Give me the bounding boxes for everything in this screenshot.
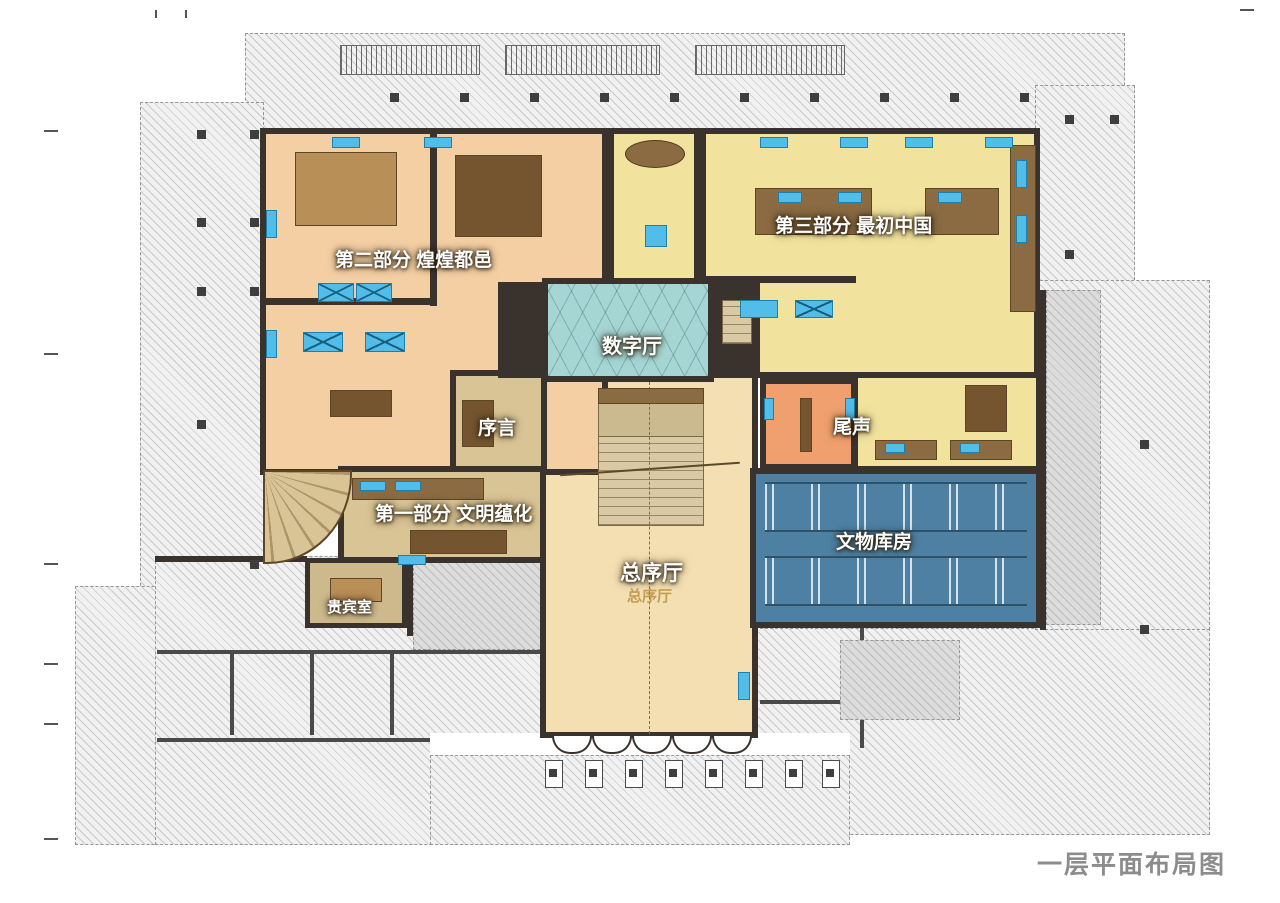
- stair-landing: [598, 402, 704, 438]
- dim-tick: [155, 10, 157, 18]
- label-storage: 文物库房: [836, 527, 912, 554]
- label-part1: 第一部分 文明蕴化: [375, 499, 532, 526]
- stair-mech-room: [413, 558, 545, 650]
- striped-wall-section: [340, 45, 480, 75]
- vestibule-ornament: [625, 140, 685, 168]
- display-platform: [295, 152, 397, 226]
- label-digital-hall: 数字厅: [602, 330, 662, 359]
- label-vip: 贵宾室: [327, 596, 372, 617]
- dim-tick: [44, 838, 58, 840]
- dim-tick: [185, 10, 187, 18]
- display-case-x: [356, 283, 392, 302]
- dim-tick: [1240, 9, 1254, 11]
- label-part3: 第三部分 最初中国: [775, 211, 932, 238]
- display-block: [455, 155, 542, 237]
- grand-staircase: [598, 436, 704, 526]
- label-main-hall: 总序厅: [620, 557, 683, 587]
- display-case-x: [365, 332, 405, 352]
- sheet-title: 一层平面布局图: [1037, 845, 1226, 881]
- dim-tick: [44, 563, 58, 565]
- display-pillar: [800, 398, 812, 452]
- display-case-x: [318, 283, 354, 302]
- dim-tick: [44, 663, 58, 665]
- display-case-x: [795, 300, 833, 318]
- label-epilogue: 尾声: [833, 412, 871, 439]
- dim-tick: [44, 353, 58, 355]
- right-corridor: [1046, 290, 1101, 625]
- sublabel-main-hall: 总序厅: [627, 585, 672, 606]
- stair-landing-strip: [598, 388, 704, 404]
- display-table: [410, 530, 507, 554]
- mech-room: [840, 640, 960, 720]
- exhibit-table: [925, 188, 999, 235]
- label-part2: 第二部分 煌煌都邑: [335, 245, 492, 272]
- storage-shelves: [765, 556, 1027, 606]
- floor-plan: 第二部分 煌煌都邑 第三部分 最初中国 数字厅 序言 第一部分 文明蕴化 总序厅…: [0, 0, 1280, 903]
- dim-tick: [44, 130, 58, 132]
- label-preface: 序言: [478, 413, 516, 440]
- striped-wall-section: [695, 45, 845, 75]
- display-table: [330, 390, 392, 417]
- storage-shelves: [765, 482, 1027, 532]
- display-case-x: [303, 332, 343, 352]
- hatch-left-band: [140, 102, 264, 626]
- dim-tick: [44, 723, 58, 725]
- display-block: [965, 385, 1007, 432]
- striped-wall-section: [505, 45, 660, 75]
- hatch-right-upper: [1035, 85, 1135, 285]
